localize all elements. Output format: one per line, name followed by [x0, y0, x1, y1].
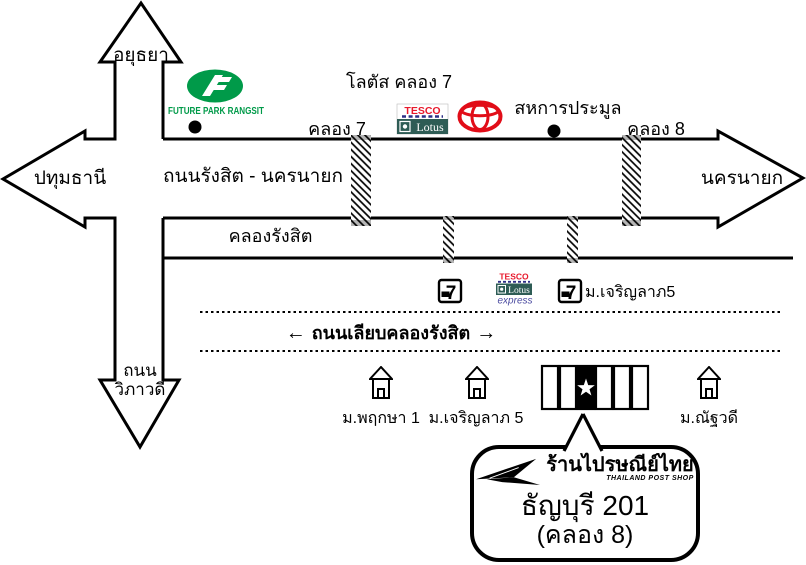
tesco-express-express-text: express	[497, 296, 532, 307]
label-frontage-road: ← ถนนเลียบคลองรังสิต →	[262, 322, 520, 344]
house-icon-phruksa1	[370, 367, 392, 398]
lotus-text: Lotus	[416, 120, 444, 134]
seven-eleven-icon-west: 7	[439, 280, 461, 304]
label-phruksa1: ม.พฤกษา 1	[340, 410, 422, 428]
future-park-rangsit-text: FUTURE PARK RANGSIT	[168, 106, 264, 117]
post-shop-callout: ร้านไปรษณีย์ไทย THAILAND POST SHOP ธัญบุ…	[472, 447, 698, 560]
post-shop-detail: (คลอง 8)	[537, 522, 634, 550]
map-canvas: FUTURE PARK RANGSIT TESCO Lotus 7	[0, 0, 806, 565]
house-icon-charoenlap5	[466, 367, 488, 398]
svg-text:7: 7	[446, 283, 457, 304]
shophouse-row	[542, 366, 648, 409]
label-sahakan-pramun: สหการประมูล	[512, 98, 624, 118]
brand-thai-text: ร้านไปรษณีย์ไทย	[546, 454, 694, 476]
label-canal-rangsit: คลองรังสิต	[223, 226, 318, 246]
label-west-pathumthani: ปทุมธานี	[30, 168, 110, 189]
canal-crossing-west	[443, 216, 454, 263]
post-shop-name: ธัญบุรี 201	[521, 491, 649, 522]
label-natthawadi: ม.ณัฐวดี	[668, 410, 750, 428]
canal-crossing-east	[567, 216, 578, 263]
svg-text:7: 7	[566, 283, 577, 304]
khlong8-bridge	[622, 135, 641, 226]
label-lotus-khlong7: โลตัส คลอง 7	[340, 72, 458, 92]
left-arrow-icon: ←	[286, 322, 306, 344]
label-south-vibhavadi: ถนน วิภาวดี	[98, 361, 182, 399]
label-charoenlap5-north: ม.เจริญลาภ5	[585, 284, 675, 302]
label-main-road: ถนนรังสิต - นครนายก	[160, 166, 346, 187]
thailand-post-logo-icon	[476, 454, 542, 485]
seven-eleven-icon-east: 7	[559, 280, 581, 304]
sahakan-marker-dot	[548, 125, 561, 138]
tesco-text: TESCO	[404, 105, 440, 117]
label-north-ayutthaya: อยุธยา	[106, 45, 176, 66]
label-khlong8: คลอง 8	[624, 119, 688, 139]
label-east-nakhonnayok: นครนายก	[698, 168, 786, 189]
tesco-express-lotus-text: Lotus	[508, 286, 530, 296]
brand-en-text: THAILAND POST SHOP	[606, 475, 694, 482]
label-charoenlap5-south: ม.เจริญลาภ 5	[424, 410, 528, 428]
tesco-lotus-logo: TESCO Lotus	[397, 104, 448, 134]
label-khlong7: คลอง 7	[303, 119, 371, 139]
future-park-rangsit-logo: FUTURE PARK RANGSIT	[168, 70, 264, 118]
thailand-post-brand: ร้านไปรษณีย์ไทย THAILAND POST SHOP	[476, 454, 694, 490]
tesco-express-tesco-text: TESCO	[499, 272, 529, 282]
right-arrow-icon: →	[476, 322, 496, 344]
khlong7-bridge	[351, 135, 371, 226]
house-icon-natthawadi	[698, 367, 720, 398]
tesco-lotus-express-logo: TESCO Lotus express	[494, 271, 534, 307]
toyota-logo	[460, 103, 501, 131]
future-park-marker-dot	[189, 121, 202, 134]
